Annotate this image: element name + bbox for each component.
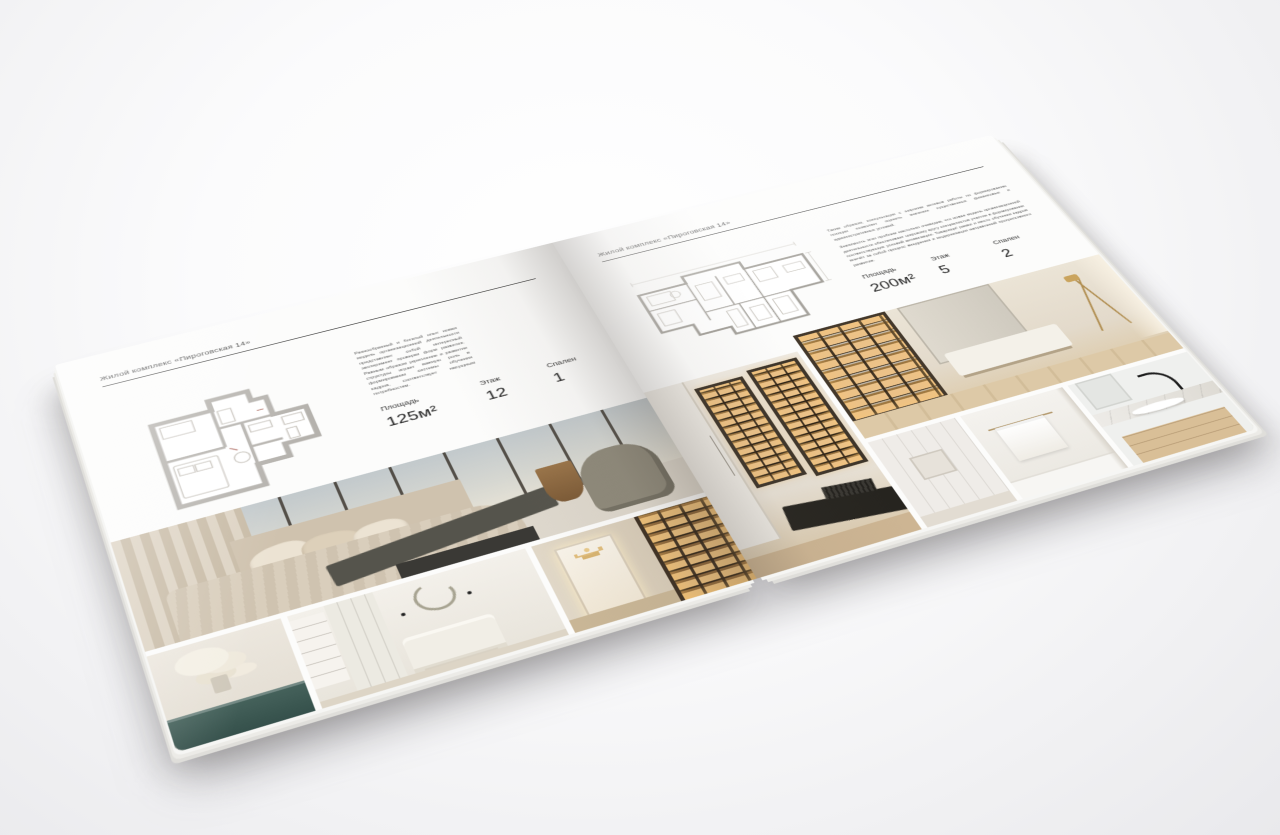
floor-plan-125 (111, 362, 361, 525)
open-brochure: Жилой комплекс «Пироговская 14» (55, 135, 1256, 752)
left-info-block: Разнообразный и богатый опыт новая модел… (110, 298, 615, 526)
right-bedrooms-spec: Спален 2 (991, 231, 1046, 261)
left-specs-row: Разнообразный и богатый опыт новая модел… (354, 300, 601, 430)
right-floor-spec: Этаж 5 (929, 247, 984, 277)
left-floor-spec: Этаж 12 (478, 369, 534, 404)
left-description: Разнообразный и богатый опыт новая модел… (354, 326, 480, 397)
left-area-spec: Разнообразный и богатый опыт новая модел… (354, 333, 466, 430)
floor-plan-200 (610, 232, 865, 367)
floor-plan-200-drawing (610, 232, 865, 367)
floor-plan-125-drawing (111, 362, 361, 525)
mockup-scene: Жилой комплекс «Пироговская 14» (0, 0, 1280, 835)
right-area-spec: Площадь 200м² (861, 263, 921, 295)
right-info-block: Таким образом, консультация с широким ак… (826, 184, 1060, 295)
left-bedrooms-spec: Спален 1 (545, 351, 601, 385)
